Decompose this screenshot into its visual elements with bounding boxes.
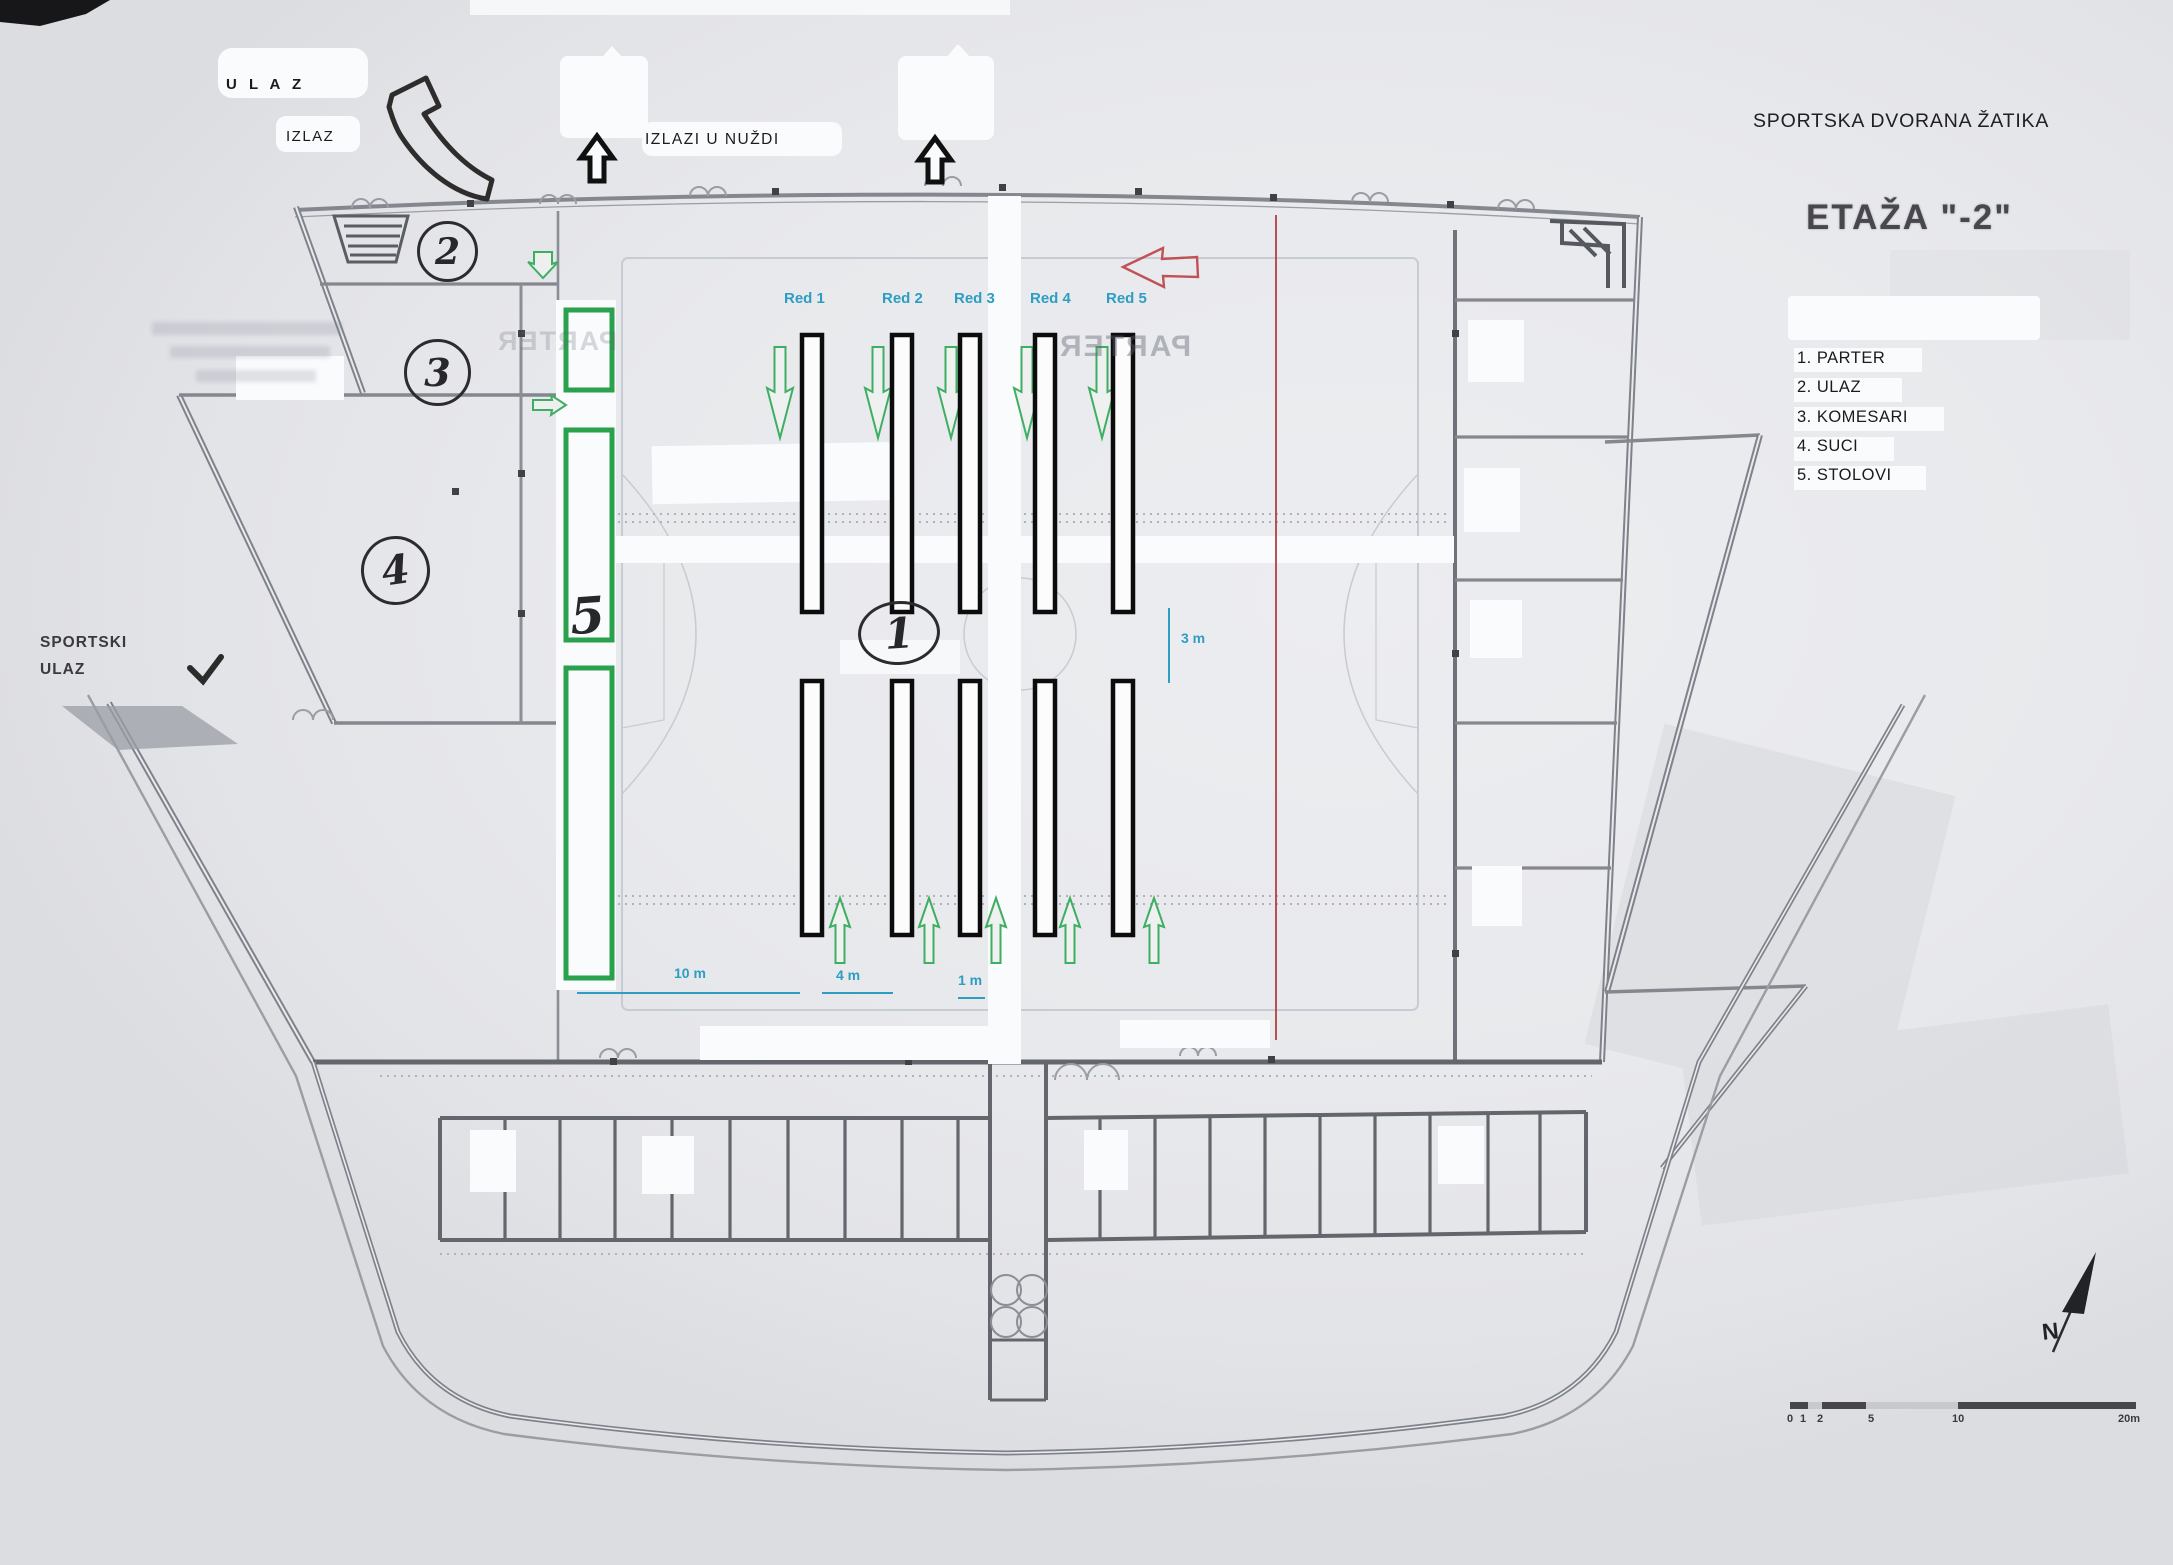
- marker-parter-number: 1: [883, 608, 916, 659]
- ghost-text-line: [152, 322, 342, 335]
- row4-upper-bar: [1035, 335, 1055, 612]
- sportski-ulaz-label-line1: SPORTSKI: [40, 634, 127, 652]
- row5-upper-bar: [1113, 335, 1133, 612]
- check-mark: [190, 657, 221, 681]
- marker-komesari-number: 3: [424, 350, 450, 395]
- legend-item-ulaz: 2. ULAZ: [1797, 378, 1861, 397]
- ghost-text-line: [196, 370, 316, 382]
- row1-upper-bar: [802, 335, 822, 612]
- row4-lower-bar: [1035, 681, 1055, 935]
- row2-lower-bar: [892, 681, 912, 935]
- row1-lower-bar: [802, 681, 822, 935]
- table-row-bars: [802, 335, 1133, 935]
- dim-4m-label: 4 m: [836, 967, 860, 983]
- izlaz-label: IZLAZ: [286, 128, 334, 145]
- hand-drawn-arrow: [389, 78, 492, 199]
- scale-label-20: 20m: [2118, 1413, 2140, 1425]
- dim-1m-label: 1 m: [958, 972, 982, 988]
- left-hull: [62, 703, 313, 1062]
- exit-arrow-icon-2: [919, 138, 951, 182]
- scale-label-0: 0: [1787, 1413, 1793, 1425]
- red-left-arrow-icon: [1123, 248, 1198, 287]
- green-down-arrow-small-icon: [528, 252, 558, 278]
- exit-arrow-icon-1: [581, 136, 613, 181]
- bottom-rooms: [313, 1062, 1602, 1400]
- scale-label-10: 10: [1952, 1413, 1964, 1425]
- row3-lower-bar: [960, 681, 980, 935]
- scale-label-2: 2: [1817, 1413, 1823, 1425]
- row-label-2: Red 2: [882, 290, 923, 307]
- scale-label-5: 5: [1868, 1413, 1874, 1425]
- scale-label-1: 1: [1800, 1413, 1806, 1425]
- compass-needle: [2053, 1252, 2096, 1352]
- marker-ulaz-number: 2: [435, 231, 460, 273]
- scan-smudge: [0, 0, 110, 26]
- scanned-floor-plan-page: U L A Z IZLAZ IZLAZI U NUŽDI SPORTSKI UL…: [0, 0, 2173, 1565]
- marker-circle-komesari: 3: [404, 339, 471, 406]
- row-label-4: Red 4: [1030, 290, 1071, 307]
- row5-lower-bar: [1113, 681, 1133, 935]
- legend-item-komesari: 3. KOMESARI: [1797, 408, 1908, 427]
- marker-suci-number: 4: [378, 545, 412, 595]
- top-wall: [295, 195, 1640, 224]
- marker-stolovi-number: 5: [568, 585, 607, 646]
- legend-item-parter: 1. PARTER: [1797, 349, 1885, 368]
- sportski-ulaz-label-line2: ULAZ: [40, 661, 85, 679]
- legend-item-suci: 4. SUCI: [1797, 437, 1858, 456]
- dim-10m-label: 10 m: [674, 965, 706, 981]
- whiteout-top-strip: [470, 0, 1010, 15]
- row-label-3: Red 3: [954, 290, 995, 307]
- ghost-parter-right: PARTER: [1058, 330, 1191, 364]
- stairs-hatch-right: [1550, 221, 1624, 288]
- ulaz-label: U L A Z: [226, 76, 305, 93]
- row2-upper-bar: [892, 335, 912, 612]
- row-label-1: Red 1: [784, 290, 825, 307]
- legend-item-stolovi: 5. STOLOVI: [1797, 466, 1892, 485]
- dim-3m-label: 3 m: [1181, 630, 1205, 646]
- stairs-hatch-left: [334, 216, 408, 262]
- marker-circle-ulaz: 2: [417, 221, 478, 282]
- ghost-text-line: [170, 346, 330, 358]
- page-title: SPORTSKA DVORANA ŽATIKA: [1753, 110, 2049, 133]
- emergency-exits-label: IZLAZI U NUŽDI: [645, 131, 780, 149]
- row-label-5: Red 5: [1106, 290, 1147, 307]
- ghost-parter-left: PARTER: [496, 326, 617, 357]
- compass-north-label: N: [2041, 1317, 2060, 1346]
- scale-bar: [1790, 1402, 2136, 1409]
- row3-upper-bar: [960, 335, 980, 612]
- floor-label: ETAŽA "-2": [1806, 198, 2013, 238]
